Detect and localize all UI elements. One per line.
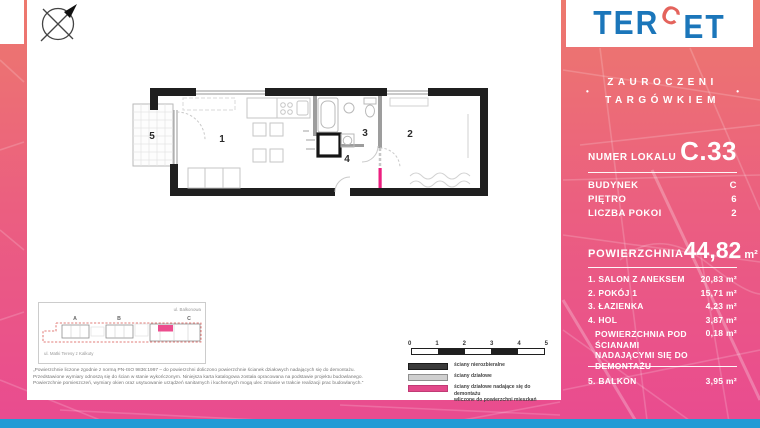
divider: [588, 172, 737, 173]
room-label-2: 2: [407, 129, 413, 140]
room-label-4: 4: [344, 154, 350, 165]
room-name: 4. HOL: [588, 314, 617, 328]
details-list: BUDYNEK C PIĘTRO 6 LICZBA POKOI 2: [588, 179, 737, 221]
room-row: 4. HOL 3,87 m²: [588, 314, 737, 328]
room-area: 0,18 m²: [706, 327, 737, 341]
room-row: 3. ŁAZIENKA 4,23 m²: [588, 300, 737, 314]
scale-bar: [411, 348, 545, 355]
tagline-dot-right: •: [736, 85, 739, 99]
scale-tick: 2: [463, 341, 466, 347]
door-swings: [177, 112, 400, 192]
scale-tick: 1: [435, 341, 438, 347]
disclaimer-line: „Powierzchnie liczone zgodnie z normą PN…: [33, 368, 367, 375]
room-area: 3,87 m²: [706, 314, 737, 328]
detail-row-building: BUDYNEK C: [588, 179, 737, 193]
street-label-bottom: ul. Matki Teresy z Kalkuty: [44, 351, 94, 356]
scale-and-legend: 0 1 2 3 4 5 ściany nierozbieralne ściany…: [408, 341, 548, 407]
logo-letter-c: C: [657, 1, 686, 32]
highlighted-unit: [158, 325, 173, 332]
tagline: • ZAUROCZENI TARGÓWKIEM •: [588, 74, 737, 110]
legend-item-solid-walls: ściany nierozbieralne: [408, 362, 548, 370]
tercet-logo: TER C ET: [593, 9, 725, 39]
unit-number-label: NUMER LOKALU: [588, 152, 676, 163]
detail-value: 6: [731, 193, 737, 207]
room-label-3: 3: [362, 128, 368, 139]
site-plan: ul. Balkonowa A B C ul. Matki Teresy z K…: [38, 302, 206, 364]
legend-label: ściany nierozbieralne: [454, 362, 505, 369]
building-label-b: B: [117, 316, 121, 322]
room-name: 3. ŁAZIENKA: [588, 300, 644, 314]
detail-label: PIĘTRO: [588, 193, 626, 207]
legend-item-demolishable-walls: ściany działowe nadające się do demontaż…: [408, 384, 548, 404]
compass-icon: [34, 2, 82, 48]
area-value: 44,82: [684, 237, 742, 263]
scale-tick: 3: [490, 341, 493, 347]
room-row-demolishable-area: POWIERZCHNIA POD ŚCIANAMI NADAJĄCYMI SIĘ…: [588, 327, 737, 372]
scale-tick: 5: [545, 341, 548, 347]
installation-shaft: [318, 134, 340, 156]
bottom-blue-bar: [0, 419, 760, 428]
room-label-5: 5: [149, 131, 155, 142]
legend-label: ściany działowe nadające się do demontaż…: [454, 384, 548, 404]
balcony-area: 3,95 m²: [706, 376, 737, 386]
room-row: 2. POKÓJ 1 15,71 m²: [588, 287, 737, 301]
detail-label: LICZBA POKOI: [588, 207, 662, 221]
legend-swatch-partition: [408, 374, 448, 381]
room-area: 20,83 m²: [701, 273, 737, 287]
room-name: 2. POKÓJ 1: [588, 287, 637, 301]
area-label: POWIERZCHNIA: [588, 248, 684, 263]
tagline-dot-left: •: [586, 85, 589, 99]
legend-item-partition-walls: ściany działowe: [408, 373, 548, 381]
legend-label: ściany działowe: [454, 373, 492, 380]
divider: [588, 267, 737, 268]
room-area: 4,23 m²: [706, 300, 737, 314]
room-label-1: 1: [219, 134, 225, 145]
disclaimer-line: Powierzchnie pomieszczeń, wymiary okien …: [33, 381, 367, 388]
total-area-row: POWIERZCHNIA 44,82m²: [588, 240, 737, 263]
legend-swatch-solid: [408, 363, 448, 370]
scale-ticks: 0 1 2 3 4 5: [408, 341, 548, 347]
divider: [588, 366, 737, 367]
flat-card-page: 1 2 3 4 5 ul. Balkonowa A B C u: [0, 0, 760, 428]
room-row: 1. SALON Z ANEKSEM 20,83 m²: [588, 273, 737, 287]
detail-row-floor: PIĘTRO 6: [588, 193, 737, 207]
tagline-line1: ZAUROCZENI: [588, 74, 737, 92]
detail-label: BUDYNEK: [588, 179, 638, 193]
street-label-top: ul. Balkonowa: [174, 307, 202, 312]
logo-text-ter: TER: [593, 7, 659, 41]
balcony-row: 5. BALKON 3,95 m²: [588, 376, 737, 386]
sidebar: • ZAUROCZENI TARGÓWKIEM • NUMER LOKALU C…: [563, 0, 760, 428]
scale-tick: 0: [408, 341, 411, 347]
room-area: 15,71 m²: [701, 287, 737, 301]
bedroom-furniture: [390, 98, 470, 187]
legend-swatch-demolishable: [408, 385, 448, 392]
living-furniture: [183, 98, 310, 188]
building-label-c: C: [187, 316, 191, 322]
top-left-margin: [0, 0, 24, 44]
scale-tick: 4: [517, 341, 520, 347]
area-unit: m²: [744, 249, 757, 261]
building-label-a: A: [73, 316, 77, 322]
detail-value: C: [730, 179, 737, 193]
floor-plan: 1 2 3 4 5: [118, 80, 510, 204]
logo-text-et: ET: [683, 11, 725, 45]
demolishable-wall: [379, 168, 382, 188]
disclaimer-text: „Powierzchnie liczone zgodnie z normą PN…: [33, 368, 367, 388]
tagline-line2: TARGÓWKIEM: [588, 92, 737, 110]
detail-row-rooms-count: LICZBA POKOI 2: [588, 207, 737, 221]
rooms-list: 1. SALON Z ANEKSEM 20,83 m² 2. POKÓJ 1 1…: [588, 273, 737, 372]
walls-legend: ściany nierozbieralne ściany działowe śc…: [408, 362, 548, 404]
unit-number-value: C.33: [680, 138, 737, 164]
unit-number-row: NUMER LOKALU C.33: [588, 138, 737, 164]
room-name: 1. SALON Z ANEKSEM: [588, 273, 685, 287]
logo-box: TER C ET: [566, 0, 753, 47]
balcony-name: 5. BALKON: [588, 376, 637, 386]
detail-value: 2: [731, 207, 737, 221]
